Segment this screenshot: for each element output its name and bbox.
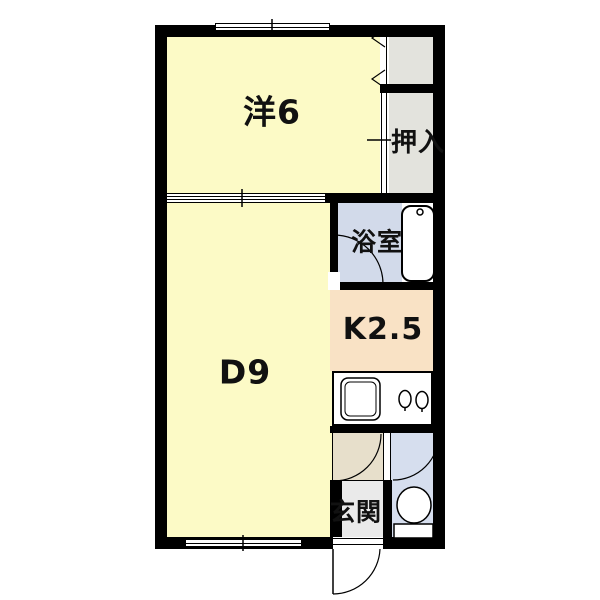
wall-under-counter	[330, 426, 445, 433]
oshiire-door-line-a	[381, 93, 382, 193]
genkan-step-line	[333, 480, 383, 481]
wall-bath-left	[330, 203, 338, 272]
entrance-door-arc	[333, 549, 380, 594]
western-room-label: 洋6	[243, 96, 301, 129]
entrance-threshold-line-1	[333, 538, 383, 539]
hallway-left-line	[332, 433, 333, 480]
sliding-door-inner-line-2	[167, 199, 325, 200]
wall-bath-bottom	[340, 282, 445, 290]
upper-closet-door-line	[386, 37, 387, 84]
oshiire-door-line-b	[386, 93, 387, 193]
sliding-door-room-divider	[167, 193, 325, 203]
bath-door-opening	[328, 272, 340, 290]
sliding-door-inner-line-1	[167, 196, 325, 197]
toilet-room-floor	[391, 433, 433, 537]
hallway-right-line	[383, 433, 384, 480]
entrance-threshold-line-2	[333, 544, 383, 545]
toilet-left-line	[390, 433, 391, 480]
dining-room-label: D9	[219, 356, 271, 389]
kitchen-label: K2.5	[343, 315, 423, 345]
bathroom-label: 浴室	[351, 230, 403, 255]
window-top-mid-line	[216, 27, 329, 28]
wall-left	[155, 25, 167, 549]
wall-closet-divider	[380, 84, 445, 93]
wall-hall-toilet	[383, 480, 392, 549]
oshiire-label: 押入	[391, 130, 445, 156]
upper-closet-floor	[389, 37, 433, 84]
kitchen-counter	[332, 371, 433, 426]
bathtub-zone	[402, 203, 433, 282]
floor-plan: 洋6 押入 浴室 K2.5 D9 玄関	[0, 0, 600, 600]
genkan-label: 玄関	[330, 500, 382, 525]
wall-mid-horizontal	[325, 193, 445, 203]
window-bottom-mid-line	[186, 543, 301, 544]
hallway-floor	[333, 433, 383, 480]
